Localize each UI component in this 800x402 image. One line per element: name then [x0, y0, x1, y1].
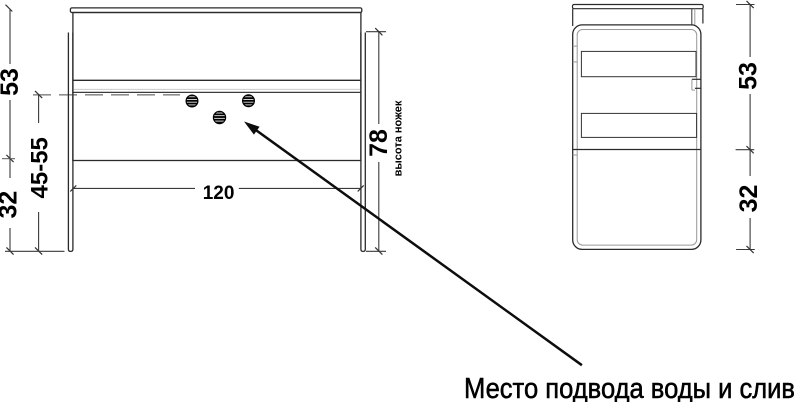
svg-text:высота ножек: высота ножек [393, 100, 405, 176]
svg-text:53: 53 [0, 68, 24, 96]
svg-text:78: 78 [365, 129, 393, 157]
svg-text:Место подвода воды и слив: Место подвода воды и слив [464, 373, 795, 402]
svg-text:53: 53 [735, 62, 763, 90]
svg-text:120: 120 [203, 183, 235, 204]
svg-text:45-55: 45-55 [26, 137, 53, 198]
svg-text:32: 32 [0, 191, 23, 219]
svg-text:32: 32 [735, 185, 763, 213]
